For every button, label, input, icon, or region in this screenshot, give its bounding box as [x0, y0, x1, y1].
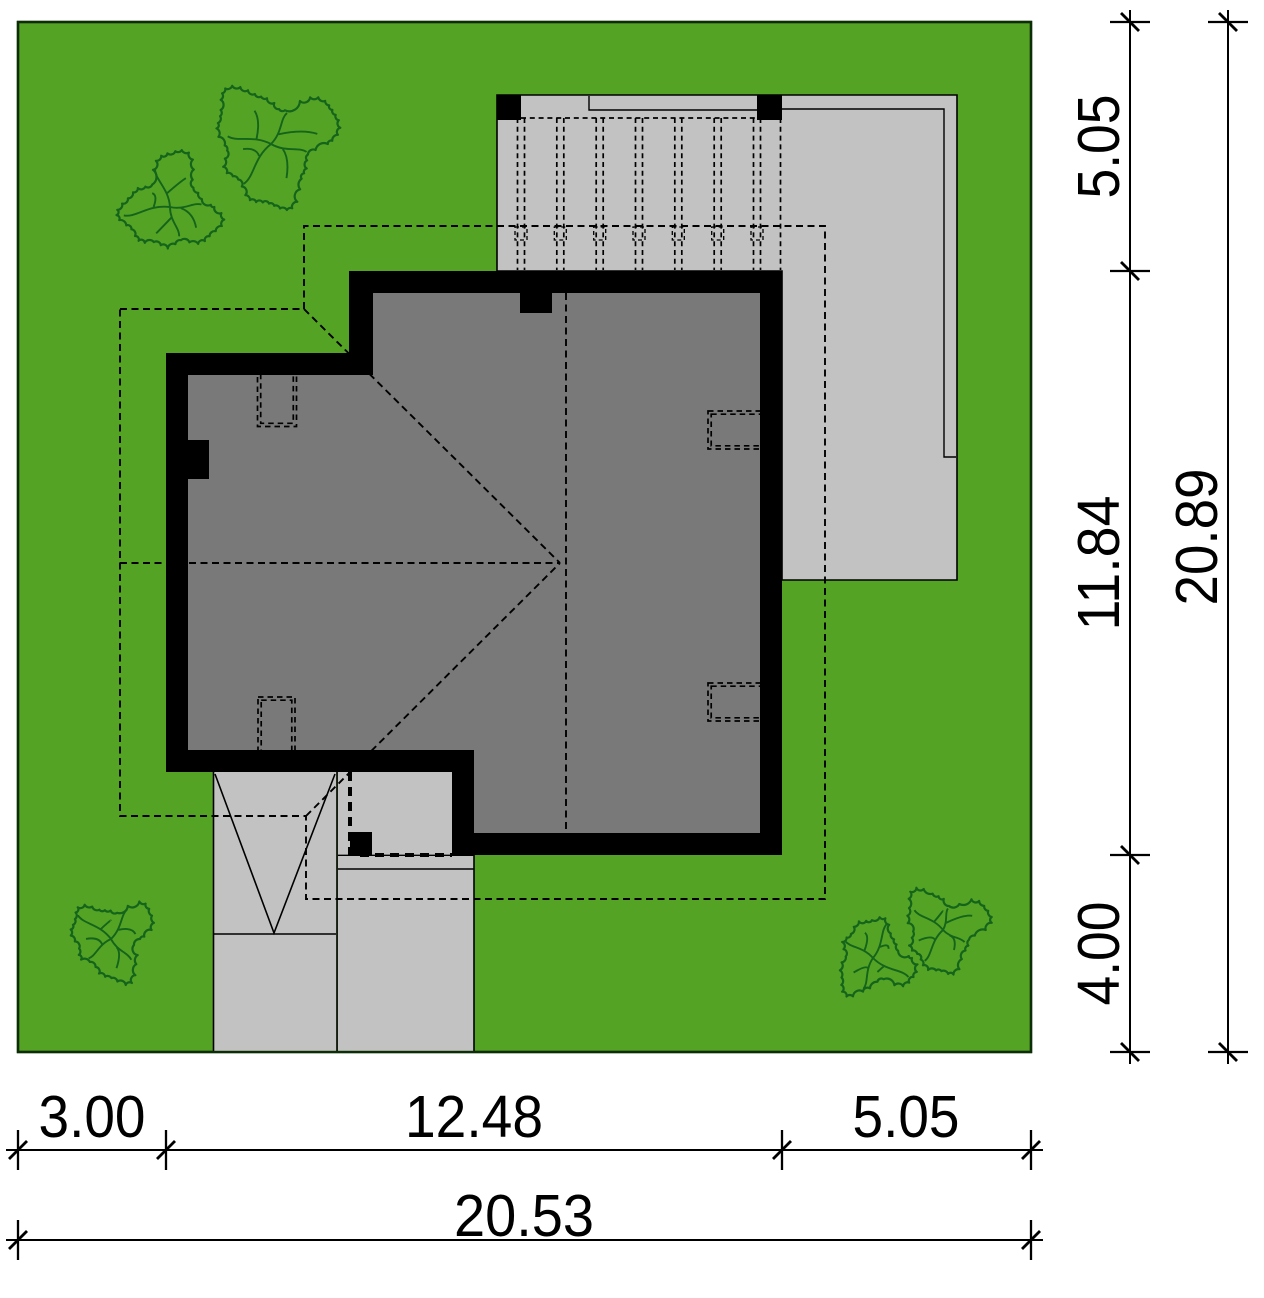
svg-text:20.89: 20.89 [1164, 469, 1230, 606]
svg-text:3.00: 3.00 [39, 1084, 146, 1150]
svg-text:20.53: 20.53 [454, 1183, 594, 1249]
svg-text:4.00: 4.00 [1066, 902, 1132, 1006]
svg-text:5.05: 5.05 [1066, 95, 1132, 199]
svg-text:11.84: 11.84 [1066, 496, 1132, 631]
svg-text:5.05: 5.05 [853, 1084, 960, 1150]
svg-text:12.48: 12.48 [405, 1084, 543, 1150]
